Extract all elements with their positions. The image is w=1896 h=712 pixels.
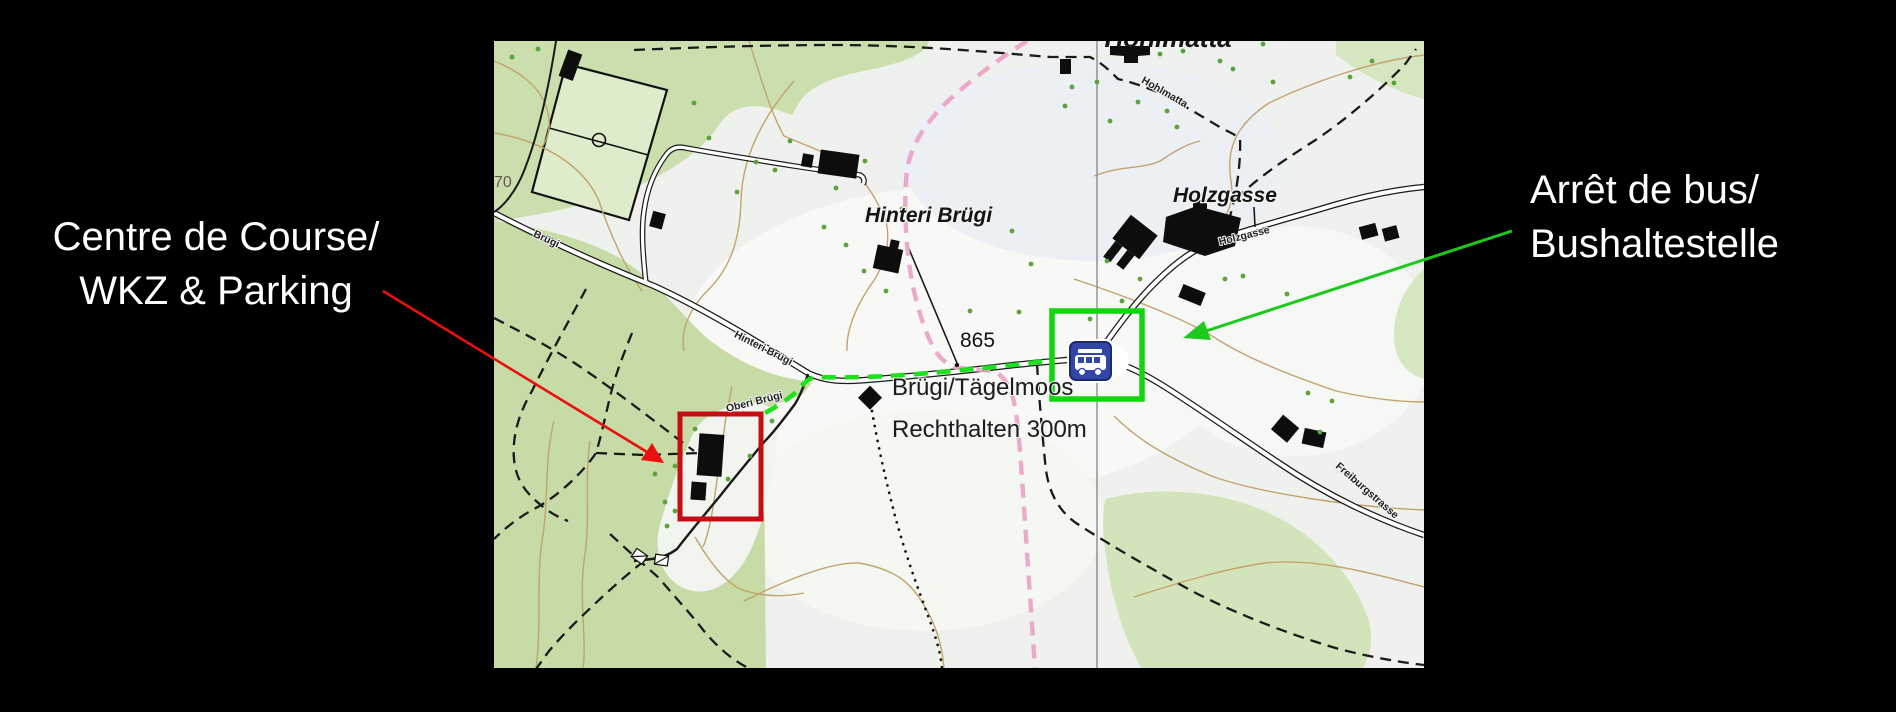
place-label-hohlmatta: Hohlmatta <box>1104 41 1231 53</box>
wkz-caption-line2: WKZ & Parking <box>18 264 414 318</box>
place-label-holzgasse: Holzgasse <box>1173 184 1277 207</box>
wkz-building-small <box>690 482 706 501</box>
bus-stop-caption: Arrêt de bus/ Bushaltestelle <box>1530 163 1779 271</box>
wkz-caption: Centre de Course/ WKZ & Parking <box>18 210 414 318</box>
spot-height-label: 865 <box>960 329 995 352</box>
bus-stop-caption-line1: Arrêt de bus/ <box>1530 163 1779 217</box>
wkz-building-large <box>697 433 725 477</box>
slide-background: { "page": { "background": "#000000" }, "… <box>0 0 1896 712</box>
place-label-hinteri-bruegi: Hinteri Brügi <box>865 204 993 227</box>
destination-label-line2: Rechthalten 300m <box>892 416 1087 443</box>
wkz-caption-line1: Centre de Course/ <box>18 210 414 264</box>
contour-label: 70 <box>494 174 512 191</box>
topo-map: Hohlmatta Hinteri Brügi Holzgasse Brügi … <box>494 41 1424 668</box>
spot-height-point <box>955 363 959 367</box>
bus-stop-caption-line2: Bushaltestelle <box>1530 217 1779 271</box>
destination-label-line1: Brügi/Tägelmoos <box>892 374 1073 401</box>
topo-map-canvas: Hohlmatta Hinteri Brügi Holzgasse Brügi … <box>494 41 1424 668</box>
